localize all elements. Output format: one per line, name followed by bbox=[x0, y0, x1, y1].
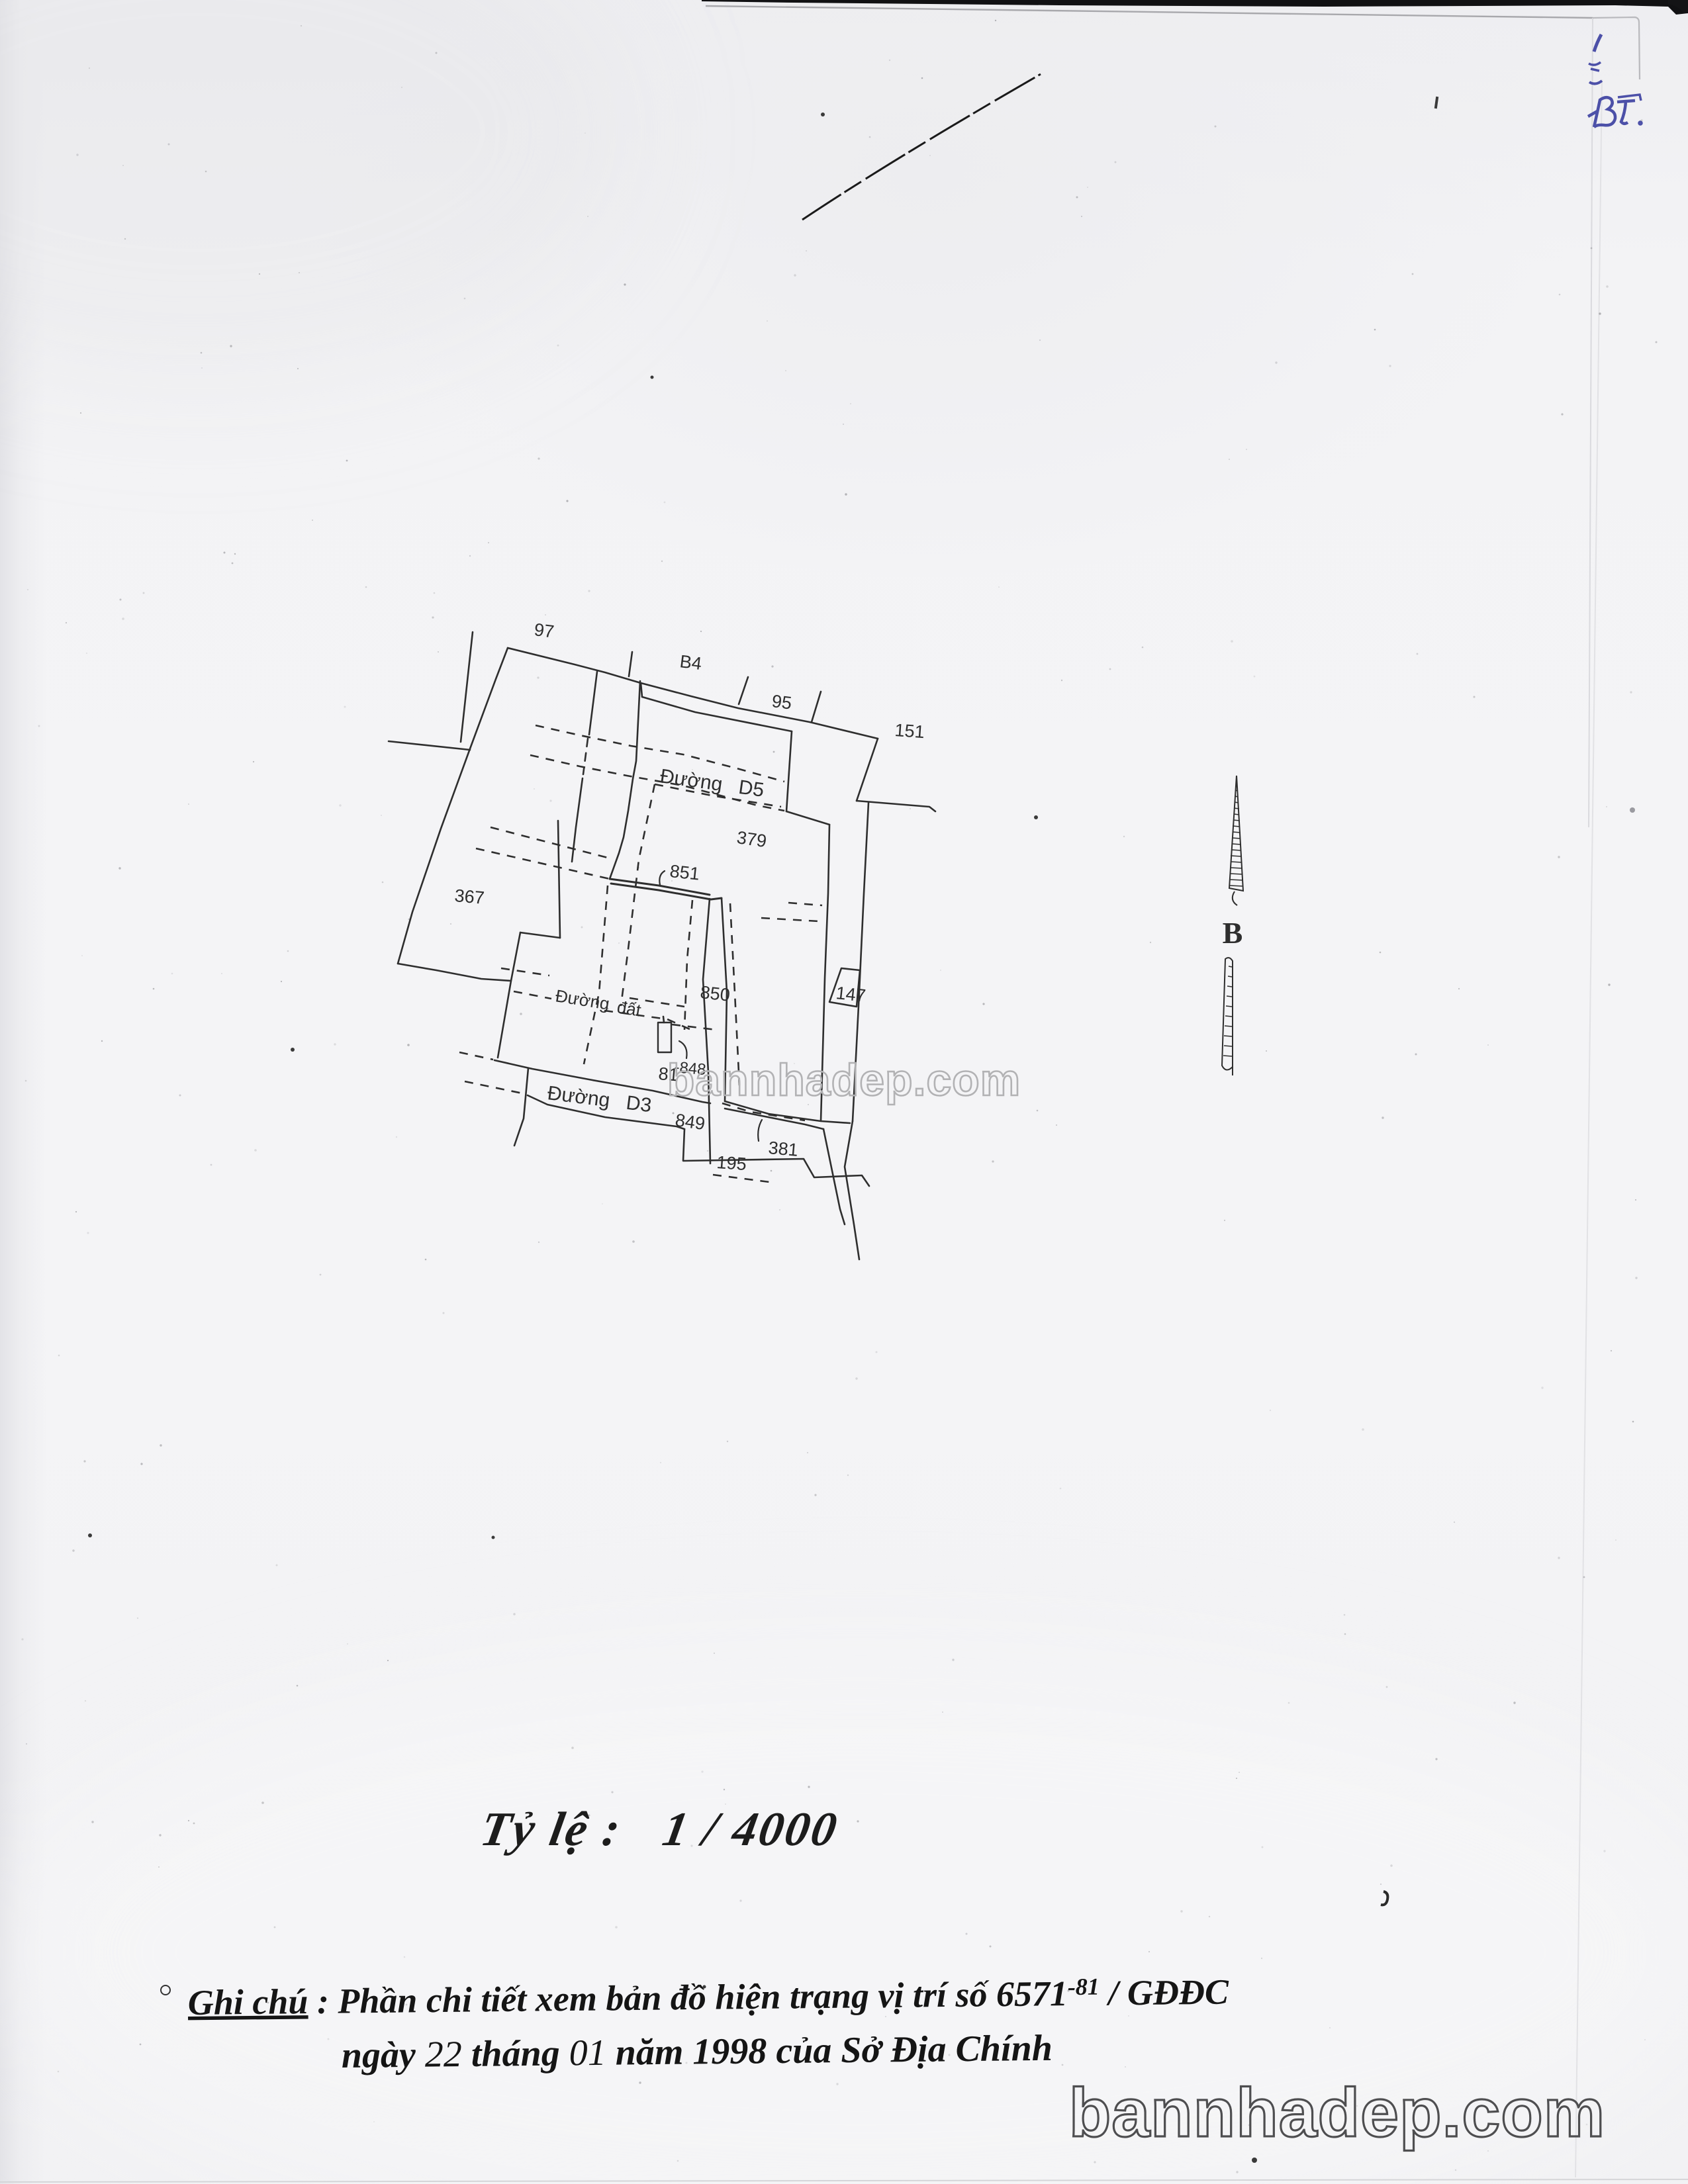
svg-text:Đường: Đường bbox=[554, 985, 611, 1013]
svg-text:850: 850 bbox=[699, 982, 731, 1005]
svg-text:B: B bbox=[1223, 916, 1243, 950]
svg-text:ngày 22 tháng 01 năm 1998 của: ngày 22 tháng 01 năm 1998 của Sở Địa Chí… bbox=[341, 2028, 1053, 2076]
svg-text:379: 379 bbox=[735, 827, 768, 851]
svg-text:97: 97 bbox=[533, 619, 555, 641]
svg-text:849: 849 bbox=[674, 1110, 706, 1134]
svg-text:bannhadep.com: bannhadep.com bbox=[667, 1055, 1021, 1105]
svg-text:367: 367 bbox=[453, 886, 485, 908]
svg-text:195: 195 bbox=[716, 1152, 747, 1174]
svg-text:381: 381 bbox=[767, 1138, 799, 1160]
svg-text:bannhadep.com: bannhadep.com bbox=[1069, 2075, 1605, 2152]
svg-text:95: 95 bbox=[771, 691, 792, 713]
svg-text:B4: B4 bbox=[679, 651, 702, 674]
svg-text:đất: đất bbox=[616, 997, 643, 1020]
svg-text:Tỷ lệ : 1 / 4000: Tỷ lệ : 1 / 4000 bbox=[477, 1802, 843, 1856]
svg-text:147: 147 bbox=[835, 983, 867, 1006]
svg-text:851: 851 bbox=[669, 861, 700, 884]
svg-text:151: 151 bbox=[894, 720, 925, 742]
svg-text:Đường D5: Đường D5 bbox=[659, 765, 765, 801]
